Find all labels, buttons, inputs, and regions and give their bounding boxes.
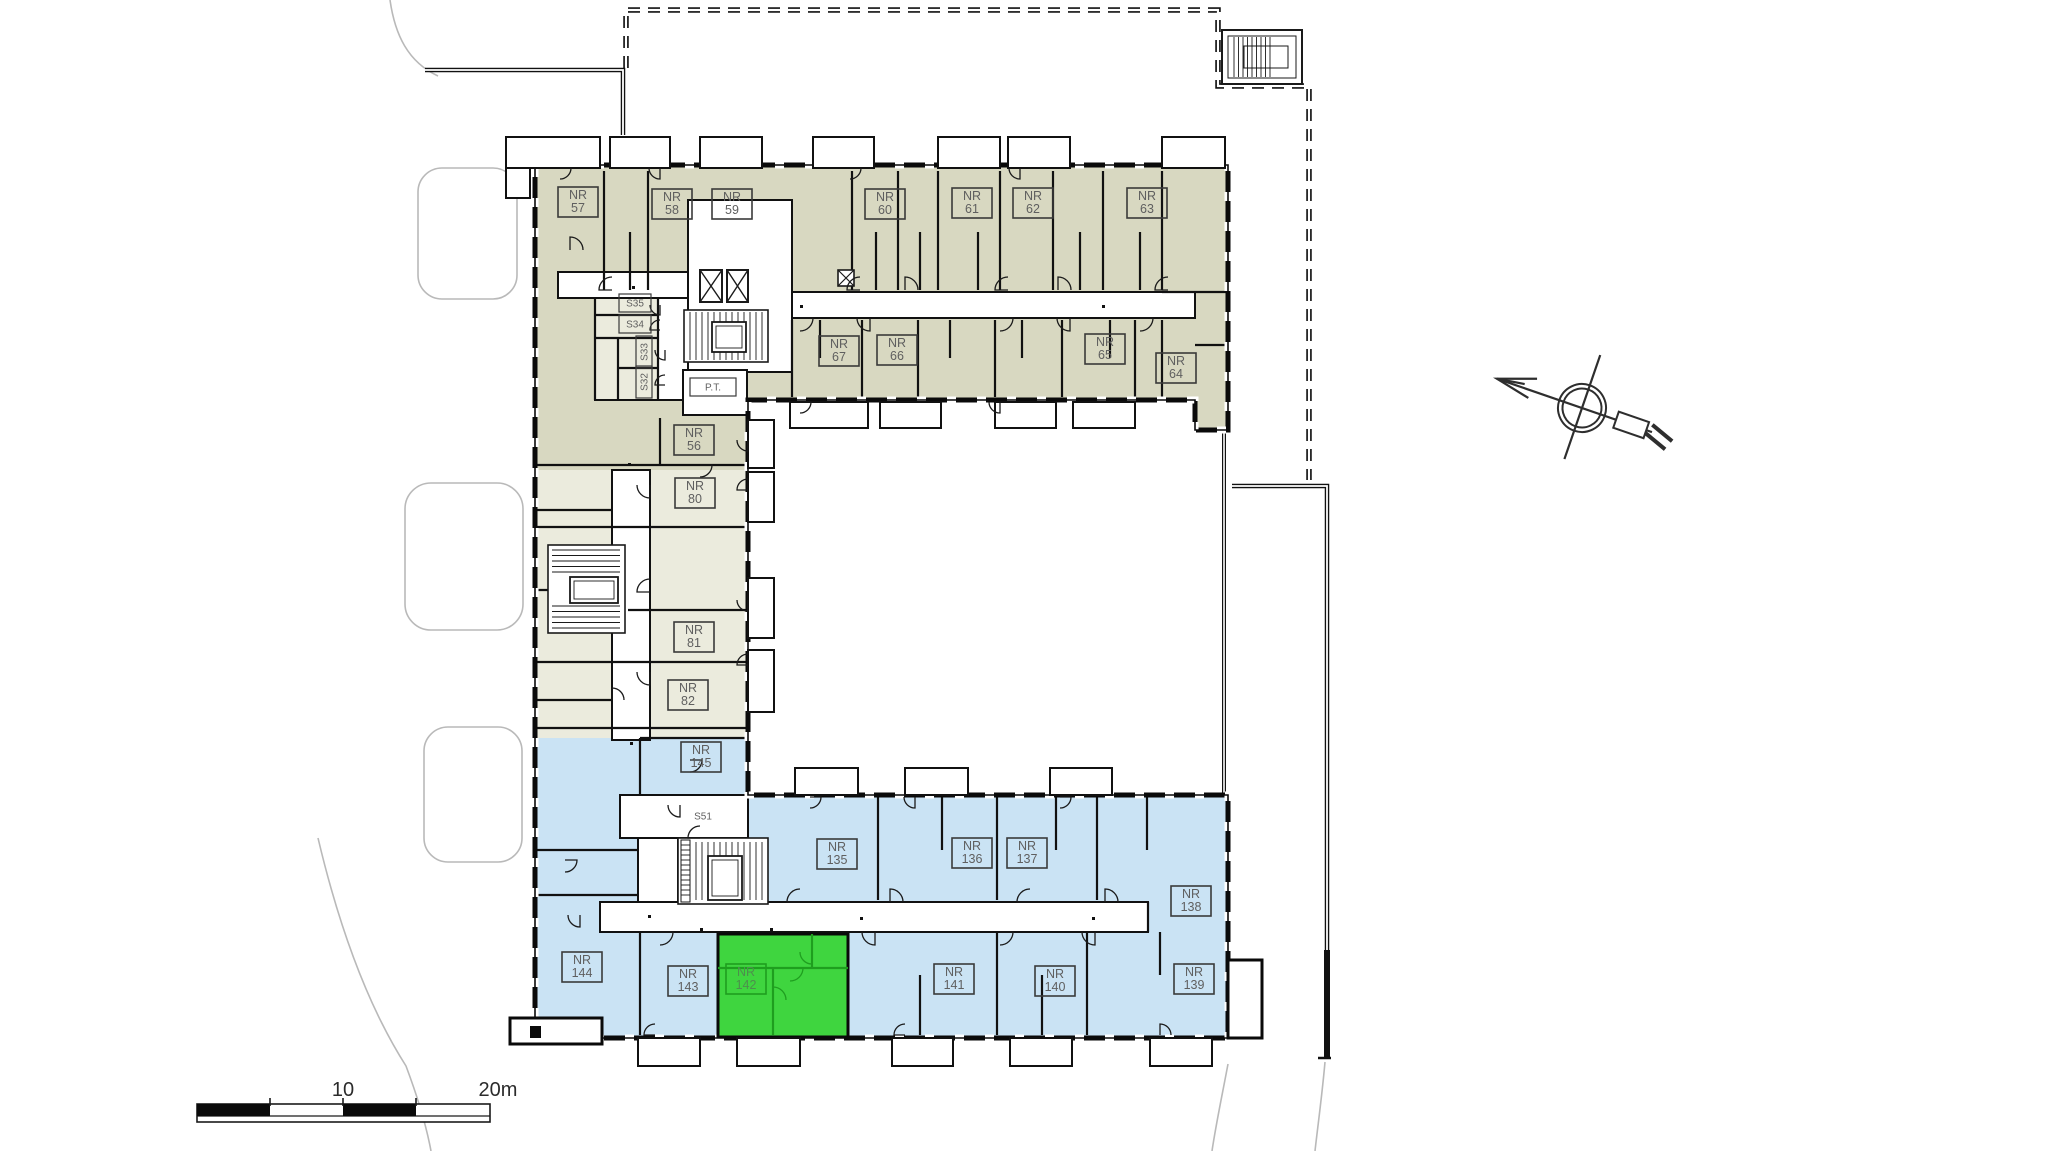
svg-text:NR139: NR139: [1184, 965, 1205, 992]
balcony: [813, 137, 874, 168]
svg-text:NR145: NR145: [691, 743, 712, 770]
svg-text:NR57: NR57: [569, 188, 587, 215]
svg-text:NR80: NR80: [686, 479, 704, 506]
svg-text:NR58: NR58: [663, 190, 681, 217]
balcony: [748, 420, 774, 468]
balcony: [1010, 1038, 1072, 1066]
balcony: [737, 1038, 800, 1066]
balcony: [892, 1038, 953, 1066]
stairwell-left: [548, 545, 625, 633]
svg-text:NR66: NR66: [888, 336, 906, 363]
site-curve-topleft: [390, 0, 438, 76]
svg-text:NR136: NR136: [962, 839, 983, 866]
svg-text:NR81: NR81: [685, 623, 703, 650]
site-plan: NR57NR58NR59NR60NR61NR62NR63NR67NR66NR65…: [0, 0, 2048, 1151]
corridor-bottom-west: [638, 838, 678, 904]
balcony: [938, 137, 1000, 168]
corner-loggia: [1228, 960, 1262, 1038]
balcony: [610, 137, 670, 168]
balcony: [506, 137, 600, 168]
svg-text:P.T.: P.T.: [705, 383, 721, 394]
svg-text:NR141: NR141: [944, 965, 965, 992]
svg-text:S33: S33: [640, 343, 651, 361]
corridor-bottom-main: [600, 902, 1148, 932]
balcony: [638, 1038, 700, 1066]
scale-end-label: 20m: [479, 1079, 518, 1101]
scale-bar: 10 20m: [197, 1079, 517, 1122]
svg-text:NR62: NR62: [1024, 189, 1042, 216]
corridor-top-east: [792, 292, 1195, 318]
balcony: [1073, 402, 1135, 428]
exterior-stair: [1222, 30, 1302, 84]
svg-text:NR137: NR137: [1017, 839, 1038, 866]
balcony: [995, 402, 1056, 428]
balcony: [748, 578, 774, 638]
balcony: [748, 650, 774, 712]
svg-text:NR135: NR135: [827, 840, 848, 867]
site-curve-bottomright-1: [1212, 1064, 1228, 1151]
svg-text:NR67: NR67: [830, 337, 848, 364]
svg-text:S32: S32: [640, 373, 651, 391]
balcony: [748, 472, 774, 522]
svg-text:NR60: NR60: [876, 190, 894, 217]
svg-text:NR59: NR59: [723, 190, 741, 217]
svg-text:S51: S51: [694, 812, 712, 823]
svg-text:S34: S34: [626, 320, 644, 331]
svg-text:NR143: NR143: [678, 967, 699, 994]
svg-text:NR64: NR64: [1167, 354, 1185, 381]
scale-mid-label: 10: [332, 1079, 354, 1101]
balcony: [700, 137, 762, 168]
balcony: [790, 402, 868, 428]
svg-text:NR140: NR140: [1045, 967, 1066, 994]
stairwell-bottom: [678, 838, 768, 904]
site-pad-3: [424, 727, 522, 862]
svg-text:NR82: NR82: [679, 681, 697, 708]
elevator-small: [838, 270, 854, 286]
svg-text:NR142: NR142: [736, 965, 757, 992]
balcony: [795, 768, 858, 795]
balcony: [1050, 768, 1112, 795]
service-label-s51: S51: [694, 812, 712, 823]
balcony: [1150, 1038, 1212, 1066]
balcony: [880, 402, 941, 428]
compass-icon: [1479, 326, 1691, 491]
svg-text:NR63: NR63: [1138, 189, 1156, 216]
site-curve-bottomright-2: [1315, 1062, 1325, 1151]
floor-plan-svg: NR57NR58NR59NR60NR61NR62NR63NR67NR66NR65…: [0, 0, 2048, 1151]
site-pad-1: [418, 168, 517, 299]
svg-text:NR144: NR144: [572, 953, 593, 980]
balcony: [506, 168, 530, 198]
svg-text:NR56: NR56: [685, 426, 703, 453]
balcony: [905, 768, 968, 795]
svg-text:S35: S35: [626, 299, 644, 310]
svg-text:NR61: NR61: [963, 189, 981, 216]
svg-text:NR138: NR138: [1181, 887, 1202, 914]
balcony: [1008, 137, 1070, 168]
balcony: [1162, 137, 1225, 168]
hall-s51: [620, 795, 748, 838]
site-pad-2: [405, 483, 523, 630]
svg-text:NR65: NR65: [1096, 335, 1114, 362]
